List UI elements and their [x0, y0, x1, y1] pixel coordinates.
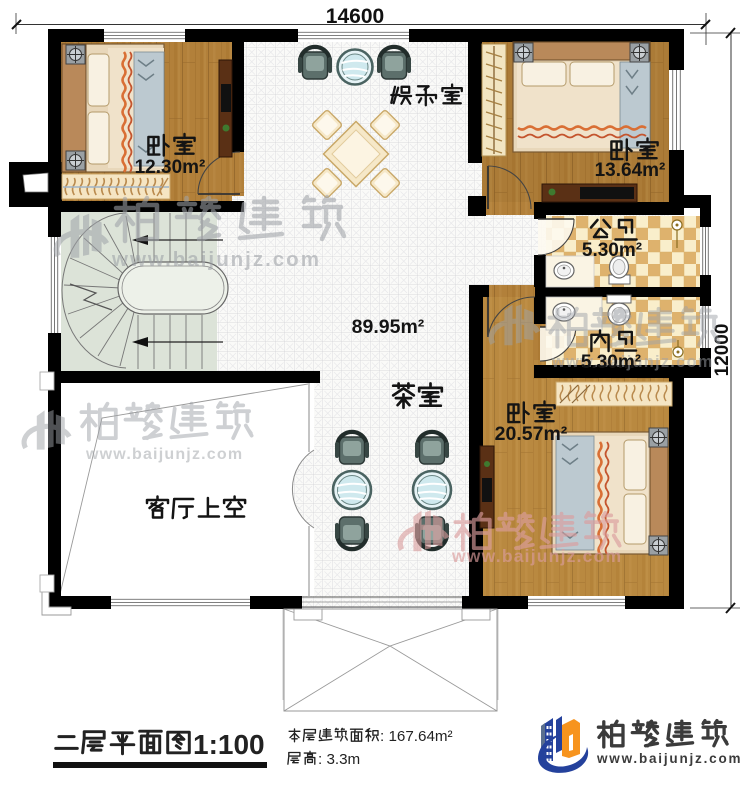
svg-text:www.baijunjz.com: www.baijunjz.com: [111, 248, 321, 271]
svg-text:14600: 14600: [326, 5, 384, 28]
svg-text:12000: 12000: [712, 324, 733, 377]
svg-text:5.30m²: 5.30m²: [582, 240, 642, 261]
svg-text:13.64m²: 13.64m²: [595, 160, 666, 181]
svg-text:: 167.64m²: : 167.64m²: [380, 728, 453, 745]
svg-text:: 3.3m: : 3.3m: [318, 751, 360, 768]
svg-text:1:100: 1:100: [193, 729, 265, 760]
svg-text:www.baijunjz.com: www.baijunjz.com: [596, 751, 742, 766]
svg-text:20.57m²: 20.57m²: [495, 423, 568, 445]
svg-text:www.baijunjz.com: www.baijunjz.com: [85, 446, 243, 463]
svg-text:5.30m²: 5.30m²: [581, 352, 641, 373]
svg-text:12.30m²: 12.30m²: [135, 157, 206, 178]
svg-text:www.baijunjz.com: www.baijunjz.com: [451, 546, 622, 566]
svg-text:89.95m²: 89.95m²: [352, 316, 425, 338]
